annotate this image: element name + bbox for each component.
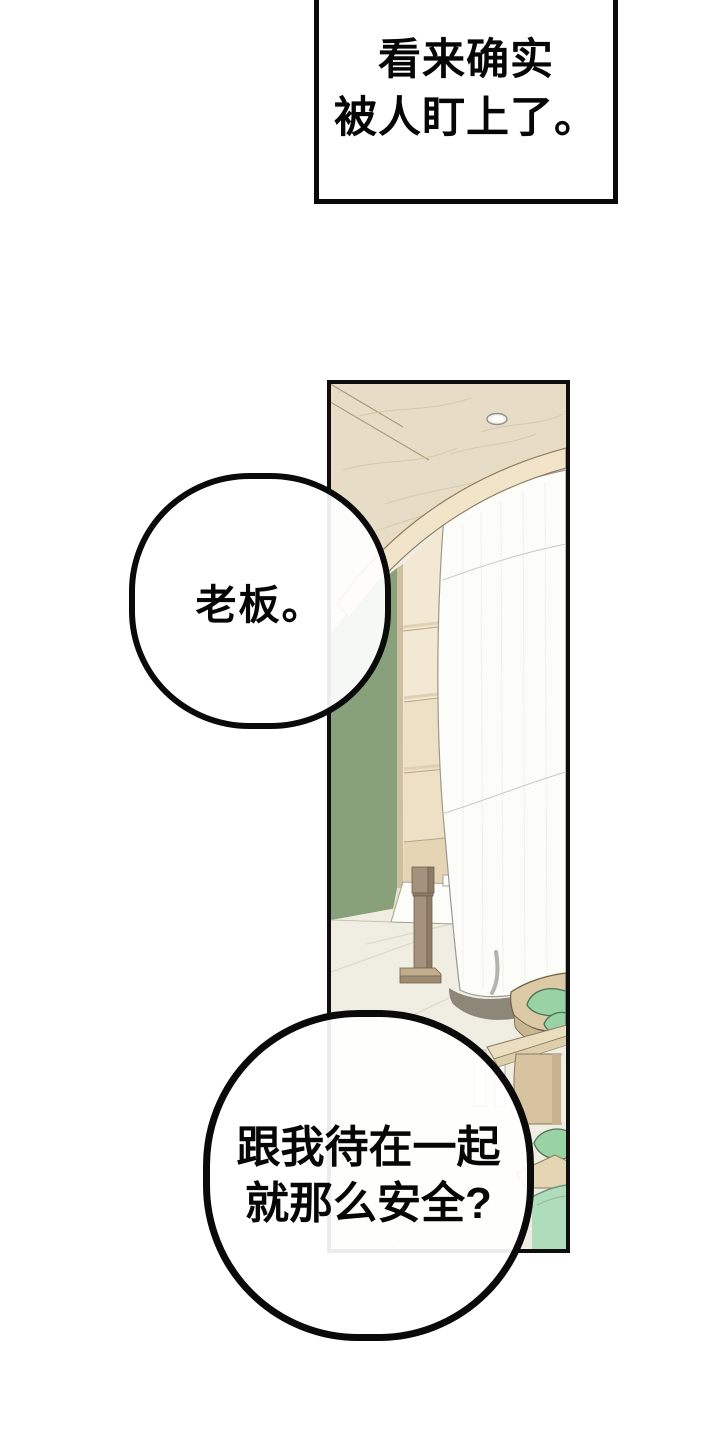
pedestal-shade (552, 1054, 561, 1124)
speech-line-1: 跟我待在一起 (237, 1120, 501, 1176)
speech-line-2: 就那么安全? (245, 1176, 492, 1232)
wall-corner-trim (397, 564, 403, 908)
speech-bubble-question: 跟我待在一起 就那么安全? (203, 1010, 534, 1341)
ceiling-light (487, 414, 507, 425)
speech-text: 老板。 (196, 571, 325, 631)
narration-box: 看来确实 被人盯上了。 (314, 0, 618, 204)
speech-bubble-boss: 老板。 (129, 473, 391, 729)
webtoon-page: 看来确实 被人盯上了。 (0, 0, 720, 1440)
narration-line-2: 被人盯上了。 (334, 89, 598, 147)
narration-line-1: 看来确实 (378, 31, 554, 89)
